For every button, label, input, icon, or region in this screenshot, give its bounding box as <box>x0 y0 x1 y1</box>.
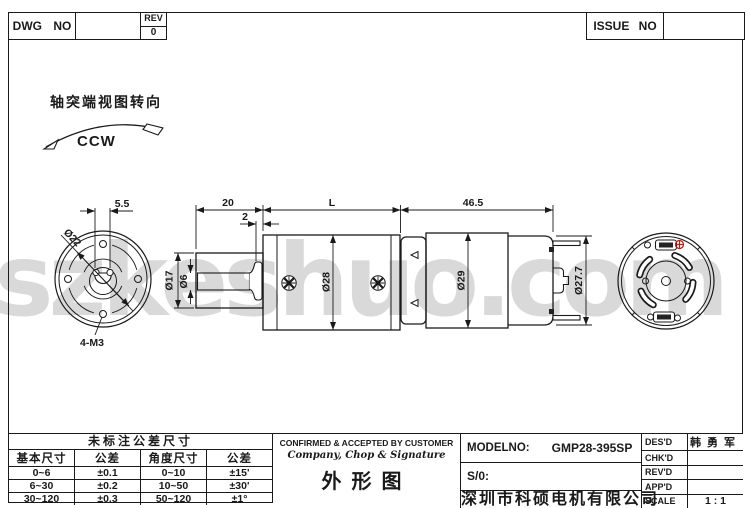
dim-label-boss-dia: Ø17 <box>164 270 176 290</box>
cell: ±30' <box>207 480 272 493</box>
so-label: S/0: <box>467 469 489 483</box>
issue-no-label: ISSUE NO <box>587 13 664 39</box>
output-shaft <box>198 273 250 290</box>
engineering-drawing-page: { "header": { "dwg_label": "DWG NO", "dw… <box>0 0 750 508</box>
table-row: 30~120 ±0.3 50~120 ±1° <box>9 493 272 505</box>
appd-label: APP'D <box>642 480 688 494</box>
dim-label-motor-len: 46.5 <box>463 197 484 209</box>
cell: ±0.2 <box>75 480 141 493</box>
desd-value: 韩勇军 <box>688 434 743 450</box>
shaft-end-view-note: 轴突端视图转向 <box>50 92 162 112</box>
screw-left <box>282 276 296 290</box>
dim-label-shaft-dia: Ø6 <box>178 274 190 288</box>
dwg-no-box: DWG NO REV 0 <box>8 12 167 40</box>
motor-end-cap <box>508 236 553 325</box>
drawing-title: 外形图 <box>273 465 460 494</box>
appd-value <box>688 480 743 494</box>
side-view: Ø17 Ø6 Ø28 Ø29 Ø27.7 20 2 L 46.5 <box>164 197 593 330</box>
title-block-left: MODELNO: GMP28-395SP S/0: 深圳市科硕电机有限公司 <box>461 434 642 508</box>
dim-label-gearbox-dia: Ø28 <box>321 272 333 292</box>
so-row: S/0: <box>461 463 641 492</box>
dwg-no-label: DWG NO <box>9 13 76 39</box>
table-row: SCALE 1 : 1 <box>642 495 743 508</box>
cell: 0~6 <box>9 467 75 480</box>
tolerance-table-title: 未标注公差尺寸 <box>9 434 272 450</box>
dim-label-washer: 2 <box>242 211 248 223</box>
dim-label-cap-dia: Ø27.7 <box>573 266 585 295</box>
title-block: MODELNO: GMP28-395SP S/0: 深圳市科硕电机有限公司 DE… <box>460 433 743 508</box>
table-row: REV'D <box>642 466 743 481</box>
brush-card <box>553 268 569 293</box>
table-row: APP'D <box>642 480 743 495</box>
cell: ±0.1 <box>75 467 141 480</box>
confirm-line2: Company, Chop & Signature <box>273 450 460 461</box>
cell: 6~30 <box>9 480 75 493</box>
crimp-mark-bottom <box>411 300 418 307</box>
confirm-line1: CONFIRMED & ACCEPTED BY CUSTOMER <box>273 438 460 448</box>
revd-value <box>688 466 743 480</box>
company-name: 深圳市科硕电机有限公司 <box>461 491 641 508</box>
dim-label-gearbox-len: L <box>329 197 336 209</box>
rev-value: 0 <box>141 27 166 40</box>
scale-label: SCALE <box>642 495 688 508</box>
dim-front-dia <box>61 235 133 311</box>
table-row: 0~6 ±0.1 0~10 ±15' <box>9 467 272 480</box>
crimp-mark-top <box>411 252 418 259</box>
rear-center-hole <box>662 277 671 286</box>
model-row: MODELNO: GMP28-395SP <box>461 434 641 463</box>
rear-view <box>618 233 714 329</box>
model-value: GMP28-395SP <box>552 441 633 455</box>
cell: 30~120 <box>9 493 75 505</box>
table-row: 6~30 ±0.2 10~50 ±30' <box>9 480 272 493</box>
positive-terminal-mark <box>676 241 684 249</box>
table-row: DES'D 韩勇军 <box>642 434 743 451</box>
col-header-basic-size: 基本尺寸 <box>9 450 75 467</box>
tolerance-table: 未标注公差尺寸 基本尺寸 公差 角度尺寸 公差 0~6 ±0.1 0~10 ±1… <box>8 433 273 503</box>
thrust-washer <box>250 262 263 300</box>
cell: 50~120 <box>141 493 207 505</box>
desd-label: DES'D <box>642 434 688 450</box>
tolerance-table-header: 基本尺寸 公差 角度尺寸 公差 <box>9 450 272 467</box>
cell: ±0.3 <box>75 493 141 505</box>
cell: ±1° <box>207 493 272 505</box>
dwg-no-value <box>76 13 141 39</box>
col-header-angle-tolerance: 公差 <box>207 450 272 467</box>
ccw-label: CCW <box>77 133 116 150</box>
dim-label-motor-dia: Ø29 <box>456 270 468 290</box>
col-header-angle-size: 角度尺寸 <box>141 450 207 467</box>
cell: 10~50 <box>141 480 207 493</box>
customer-confirm-block: CONFIRMED & ACCEPTED BY CUSTOMER Company… <box>273 433 460 503</box>
terminal-top <box>553 241 580 246</box>
shaft-cross-section <box>90 268 117 295</box>
terminal-bottom <box>553 316 580 321</box>
chkd-label: CHK'D <box>642 451 688 465</box>
cell: ±15' <box>207 467 272 480</box>
scale-value: 1 : 1 <box>688 495 743 508</box>
col-header-tolerance: 公差 <box>75 450 141 467</box>
motor-front-ring <box>401 237 426 324</box>
front-view: 5.5 Ø22 4-M3 <box>55 198 151 349</box>
cell: 0~10 <box>141 467 207 480</box>
dim-label-mount-holes: 4-M3 <box>80 337 104 349</box>
revd-label: REV'D <box>642 466 688 480</box>
chkd-value <box>688 451 743 465</box>
title-block-right: DES'D 韩勇军 CHK'D REV'D APP'D SCALE 1 : 1 <box>642 434 743 508</box>
rear-small-holes <box>643 242 691 321</box>
table-row: CHK'D <box>642 451 743 466</box>
rev-label: REV <box>141 13 166 27</box>
screw-right <box>371 276 385 290</box>
rev-column: REV 0 <box>141 13 166 39</box>
issue-no-box: ISSUE NO <box>586 12 745 40</box>
model-label: MODELNO: <box>467 442 530 454</box>
dim-label-shaft-len: 20 <box>222 197 234 209</box>
dim-label-flat-width: 5.5 <box>115 198 130 210</box>
dim-label-front-dia: Ø22 <box>61 227 84 250</box>
drawing-canvas: 5.5 Ø22 4-M3 <box>0 0 750 508</box>
issue-no-value <box>664 13 744 39</box>
